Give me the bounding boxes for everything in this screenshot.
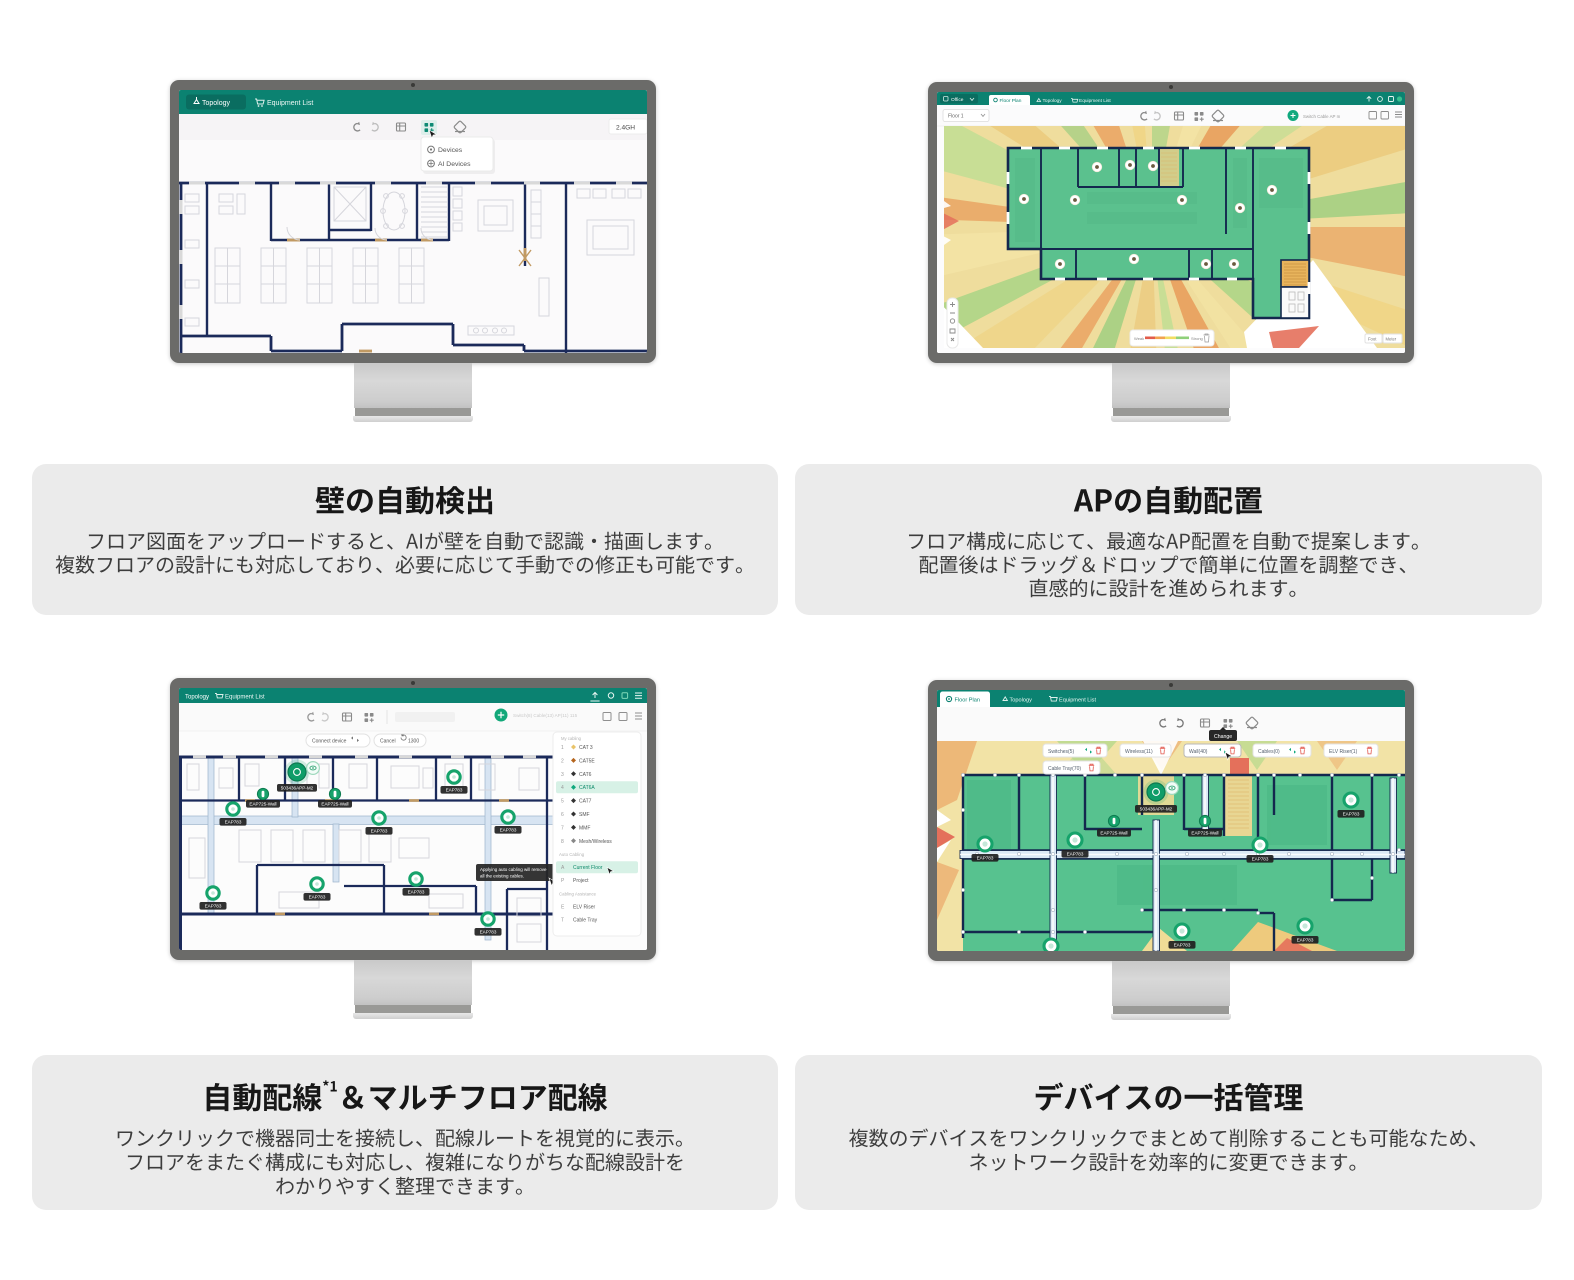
svg-text:Equipment List: Equipment List	[1079, 98, 1111, 104]
svg-text:EAP783: EAP783	[225, 819, 242, 824]
svg-text:4: 4	[561, 785, 564, 791]
svg-text:Switch Cable AP m: Switch Cable AP m	[1303, 114, 1341, 119]
svg-text:EAP725-Wall: EAP725-Wall	[1100, 830, 1127, 835]
svg-text:CAT6A: CAT6A	[579, 785, 595, 791]
svg-text:Wireless(11): Wireless(11)	[1125, 749, 1153, 755]
svg-text:EAP783: EAP783	[371, 828, 388, 833]
svg-text:all the existing cables.: all the existing cables.	[480, 874, 524, 879]
svg-text:2: 2	[561, 758, 564, 764]
svg-text:EAP783: EAP783	[446, 787, 463, 792]
svg-text:Applying auto cabling will rem: Applying auto cabling will remove	[480, 867, 547, 872]
svg-text:EAP725-Wall: EAP725-Wall	[249, 801, 276, 806]
svg-text:Cable Tray(70): Cable Tray(70)	[1048, 766, 1081, 772]
svg-text:Office: Office	[951, 97, 964, 103]
svg-text:AI Devices: AI Devices	[438, 161, 471, 168]
svg-text:My cabling: My cabling	[561, 736, 582, 741]
svg-text:Change: Change	[1214, 734, 1232, 740]
svg-text:Meter: Meter	[1386, 337, 1397, 342]
svg-text:EAP783: EAP783	[977, 855, 994, 860]
svg-text:Floor Plan: Floor Plan	[1000, 98, 1022, 104]
svg-text:Topology: Topology	[1043, 98, 1063, 104]
svg-text:CAT5E: CAT5E	[579, 758, 595, 764]
svg-text:EAP725-Wall: EAP725-Wall	[1191, 830, 1218, 835]
svg-text:Topology: Topology	[1010, 697, 1033, 703]
svg-text:Floor 1: Floor 1	[948, 114, 964, 120]
svg-text:2.4GH: 2.4GH	[616, 125, 635, 132]
svg-text:EAP783: EAP783	[1297, 937, 1314, 942]
svg-text:Topology: Topology	[202, 100, 231, 107]
svg-text:1300: 1300	[408, 739, 419, 745]
svg-text:Strong: Strong	[1191, 336, 1203, 341]
svg-text:EAP783: EAP783	[1252, 856, 1269, 861]
svg-text:Weak: Weak	[1134, 336, 1144, 341]
svg-text:EAP725-Wall: EAP725-Wall	[321, 801, 348, 806]
svg-text:EAP783: EAP783	[500, 827, 517, 832]
svg-text:6: 6	[561, 812, 564, 818]
svg-text:EAP783: EAP783	[480, 929, 497, 934]
svg-text:ELV Riser(1): ELV Riser(1)	[1329, 749, 1358, 755]
svg-text:Wall(40): Wall(40)	[1189, 749, 1208, 755]
svg-text:EAP783: EAP783	[309, 894, 326, 899]
svg-text:Equipment List: Equipment List	[267, 100, 313, 107]
svg-text:Connect device: Connect device	[312, 739, 347, 745]
svg-text:Topology: Topology	[185, 695, 209, 701]
svg-text:EAP783: EAP783	[205, 903, 222, 908]
svg-text:SMF: SMF	[579, 812, 590, 818]
svg-text:Switch(8) Cable(13) AP(11): Switch(8) Cable(13) AP(11) 115	[513, 713, 578, 718]
svg-text:MMF: MMF	[579, 825, 590, 831]
svg-text:EAP783: EAP783	[1343, 811, 1360, 816]
svg-text:503436APP-M2: 503436APP-M2	[1140, 806, 1173, 811]
svg-text:Cancel: Cancel	[380, 739, 396, 745]
svg-text:EAP783: EAP783	[1174, 942, 1191, 947]
svg-text:1: 1	[561, 745, 564, 751]
svg-text:ELV Riser: ELV Riser	[573, 904, 595, 910]
svg-text:Auto Cabling: Auto Cabling	[559, 852, 585, 857]
svg-text:5: 5	[561, 799, 564, 805]
svg-text:Cables(0): Cables(0)	[1258, 749, 1280, 755]
svg-text:CAT7: CAT7	[579, 799, 592, 805]
svg-text:Switches(5): Switches(5)	[1048, 749, 1074, 755]
svg-text:Equipment List: Equipment List	[1059, 697, 1096, 703]
svg-text:Mesh/Wireless: Mesh/Wireless	[579, 839, 612, 845]
svg-text:Current Floor: Current Floor	[573, 865, 603, 871]
svg-text:Devices: Devices	[438, 147, 463, 154]
svg-text:T: T	[561, 917, 564, 923]
svg-text:Cable Tray: Cable Tray	[573, 917, 598, 923]
svg-text:Cabling Assistance: Cabling Assistance	[559, 891, 597, 896]
svg-text:503436APP-M2: 503436APP-M2	[281, 785, 314, 790]
svg-text:EAP783: EAP783	[408, 889, 425, 894]
svg-text:Project: Project	[573, 878, 589, 884]
svg-text:CAT 3: CAT 3	[579, 745, 593, 751]
svg-text:Floor Plan: Floor Plan	[955, 697, 981, 703]
svg-text:Foot: Foot	[1368, 337, 1377, 342]
svg-text:CAT6: CAT6	[579, 772, 592, 778]
svg-text:EAP783: EAP783	[1067, 851, 1084, 856]
svg-text:3: 3	[561, 772, 564, 778]
svg-text:7: 7	[561, 825, 564, 831]
svg-text:8: 8	[561, 839, 564, 845]
svg-text:Equipment List: Equipment List	[225, 695, 265, 701]
